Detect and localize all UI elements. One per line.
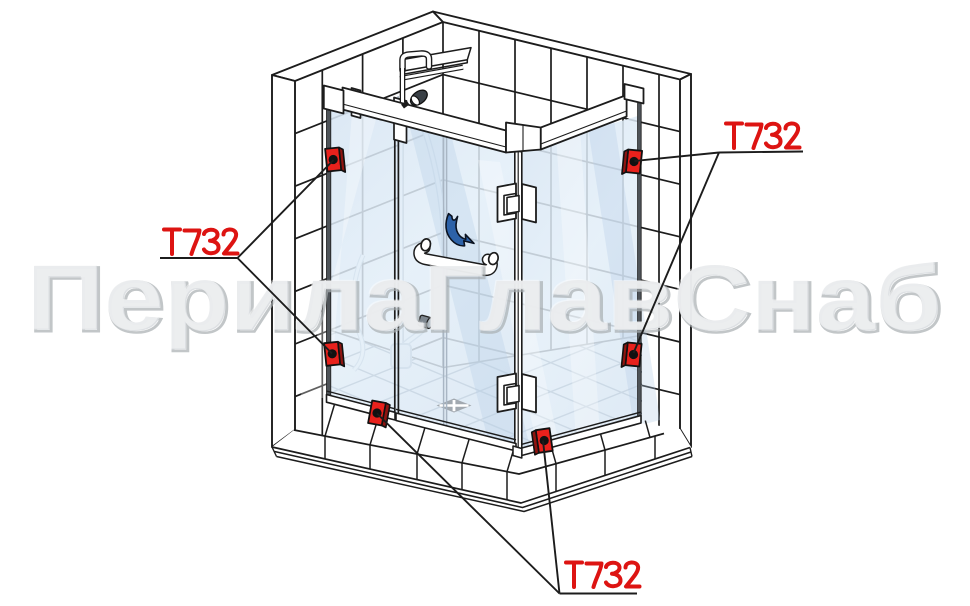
svg-text:ПерилаГлавСнаб: ПерилаГлавСнаб — [26, 245, 941, 349]
